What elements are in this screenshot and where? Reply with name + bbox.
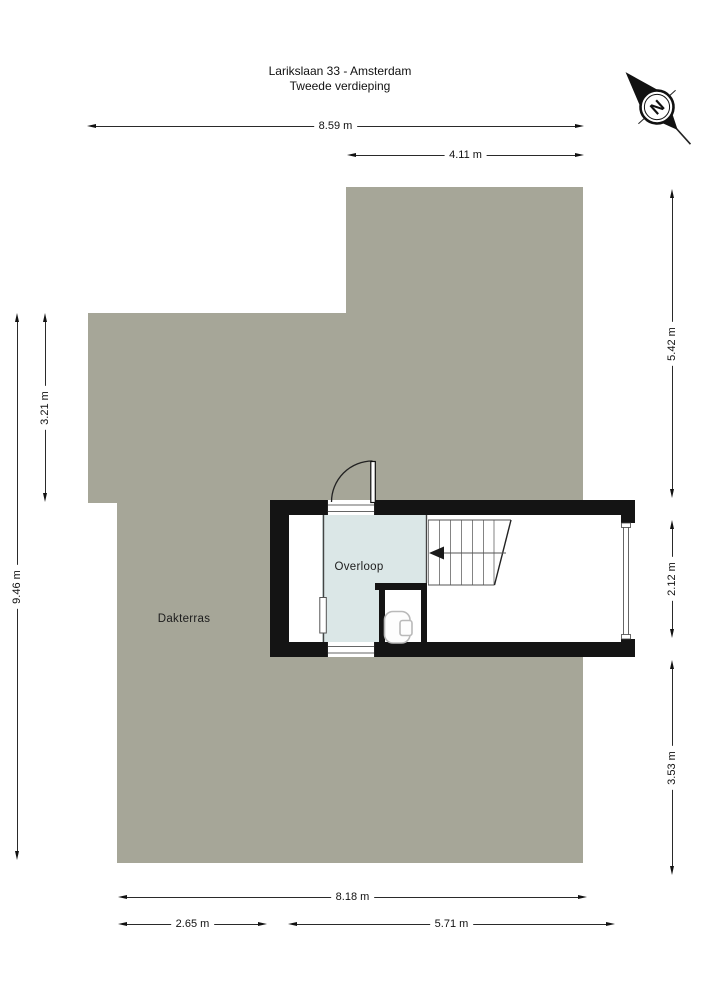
dim-bottom-left-width: 2.65 m <box>118 917 267 931</box>
floorplan-canvas: Larikslaan 33 - Amsterdam Tweede verdiep… <box>0 0 707 1000</box>
room-label-dakterras: Dakterras <box>124 613 244 625</box>
niche-door-leaf <box>320 598 327 634</box>
door-swing-icon <box>332 461 373 502</box>
threshold-bottom <box>327 647 375 654</box>
threshold-top <box>327 505 375 512</box>
threshold-top-jambs <box>328 500 375 515</box>
dim-bottom-right-width: 5.71 m <box>288 917 615 931</box>
dim-left-upper-depth: 3.21 m <box>38 313 52 502</box>
room-label-overloop: Overloop <box>309 561 409 573</box>
stairs-direction-arrow <box>429 547 444 560</box>
door-leaf <box>371 462 376 503</box>
dim-top-right-wing-width: 4.11 m <box>347 148 584 162</box>
dim-right-stairwell-depth: 2.12 m <box>665 520 679 638</box>
stairs-icon <box>428 520 511 585</box>
dim-right-lower-depth: 3.53 m <box>665 660 679 875</box>
dim-top-total-width: 8.59 m <box>87 119 584 133</box>
dim-right-upper-depth: 5.42 m <box>665 189 679 498</box>
threshold-bottom-jambs <box>328 642 375 657</box>
window-icon <box>622 523 631 639</box>
dim-left-total-depth: 9.46 m <box>10 313 24 860</box>
toilet-icon <box>385 612 413 644</box>
dim-bottom-total-width: 8.18 m <box>118 890 587 904</box>
